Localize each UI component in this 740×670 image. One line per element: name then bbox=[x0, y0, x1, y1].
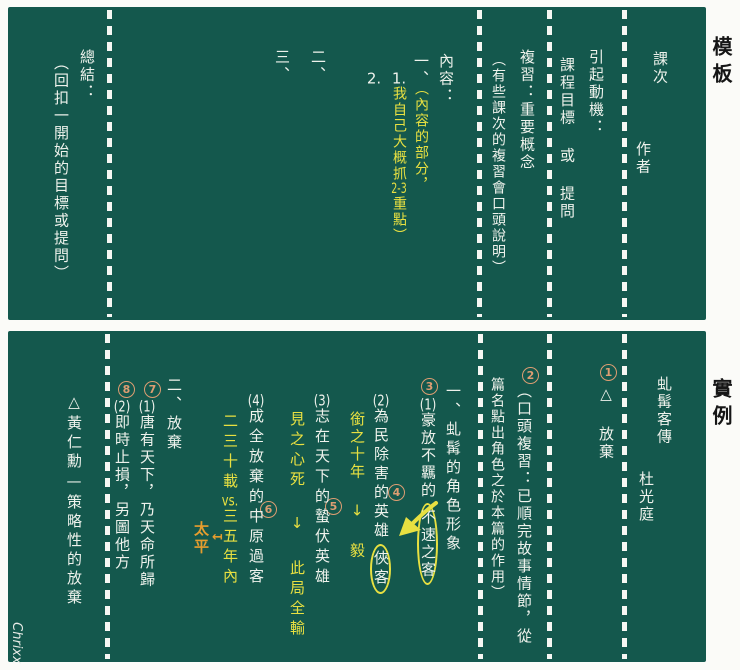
content-item-1: 一、（內容的部分， bbox=[413, 53, 428, 193]
divider-dashed-line bbox=[107, 10, 112, 317]
step-2-line-2: 篇名點出角色之於本篇的作用） bbox=[490, 377, 504, 601]
divider-dashed-line bbox=[547, 334, 552, 659]
review-heading: 複習：重要概念 bbox=[519, 49, 534, 172]
circled-number-8: 8 bbox=[118, 381, 135, 398]
point-4: (4)成全放棄的中原過客 bbox=[248, 393, 263, 588]
aside-note: △黃仁勳—策略性的放棄 bbox=[66, 393, 81, 608]
template-board: 課次 作者 引起動機： 課程目標 或 提問 複習：重要概念 （有些課次的複習會口… bbox=[8, 7, 706, 320]
point-1: (1)豪放不羈的不速之客 bbox=[417, 397, 438, 585]
left-arrow-annotation: ↤ bbox=[212, 531, 223, 544]
point-4-note: 二三十載vs.三五年內 bbox=[222, 413, 237, 588]
lesson-label: 課次 bbox=[652, 51, 667, 86]
motivation-body: 課程目標 或 提問 bbox=[559, 57, 574, 221]
point-4-annotation: 太平 bbox=[193, 521, 208, 556]
divider-dashed-line bbox=[547, 10, 552, 317]
connector-arrow bbox=[393, 499, 439, 543]
step-1-text: △ 放棄 bbox=[598, 385, 613, 461]
divider-dashed-line bbox=[105, 334, 110, 659]
signature: Chrixx bbox=[9, 621, 23, 665]
circled-number-3: 3 bbox=[421, 378, 438, 395]
motivation-heading: 引起動機： bbox=[588, 49, 603, 137]
circled-number-7: 7 bbox=[144, 381, 161, 398]
template-panel-label: 模板 bbox=[711, 36, 731, 90]
review-note: （有些課次的複習會口頭說明） bbox=[491, 52, 505, 276]
highlight-ellipse: 俠客 bbox=[370, 544, 391, 594]
summary-body: （回扣一開始的目標或提問） bbox=[53, 55, 68, 283]
step-2-line-1: （口頭複習：已順完故事情節，從 bbox=[516, 383, 531, 646]
content-item-3: 三、 bbox=[274, 49, 289, 84]
lesson-author: 杜光庭 bbox=[638, 471, 653, 524]
point-2-note: 銜之十年 ↓ 毅 bbox=[349, 411, 364, 560]
author-label: 作者 bbox=[635, 141, 650, 176]
content-heading: 內容： bbox=[438, 53, 453, 106]
divider-dashed-line bbox=[622, 10, 627, 317]
summary-heading: 總結： bbox=[79, 49, 94, 102]
content-sub-1-marker: 1. bbox=[390, 71, 408, 86]
point-6: (2)即時止損，另圖他方 bbox=[114, 399, 129, 572]
section-2-heading: 二、放棄 bbox=[166, 377, 181, 453]
point-5: (1)唐有天下，乃天命所歸 bbox=[139, 399, 154, 589]
content-note-2: 我自己大概抓2-3重點） bbox=[391, 86, 407, 244]
circled-number-1: 1 bbox=[600, 364, 617, 381]
section-1-heading: 一、虬髯的角色形象 bbox=[445, 383, 460, 554]
lesson-title: 虬髯客傳 bbox=[656, 376, 671, 446]
divider-dashed-line bbox=[477, 10, 482, 317]
content-item-1-marker: 一、 bbox=[412, 53, 430, 88]
content-sub-1: 1.我自己大概抓2-3重點） bbox=[391, 71, 406, 244]
point-2: (2)為民除害的英雄俠客 bbox=[370, 393, 391, 594]
example-board: 虬髯客傳 杜光庭 1 △ 放棄 2 （口頭複習：已順完故事情節，從 篇名點出角色… bbox=[8, 331, 706, 662]
example-panel-label: 實例 bbox=[711, 378, 731, 432]
content-item-2: 二、 bbox=[310, 49, 325, 84]
content-sub-2: 2. bbox=[366, 71, 381, 86]
circled-number-2: 2 bbox=[522, 367, 539, 384]
divider-dashed-line bbox=[622, 334, 627, 659]
content-note-1: （內容的部分， bbox=[413, 88, 429, 193]
point-3: (3)志在天下的蟄伏英雄 bbox=[314, 393, 329, 588]
divider-dashed-line bbox=[478, 334, 483, 659]
point-3-note: 見之心死 ↓ 此局全輸 bbox=[289, 411, 304, 640]
